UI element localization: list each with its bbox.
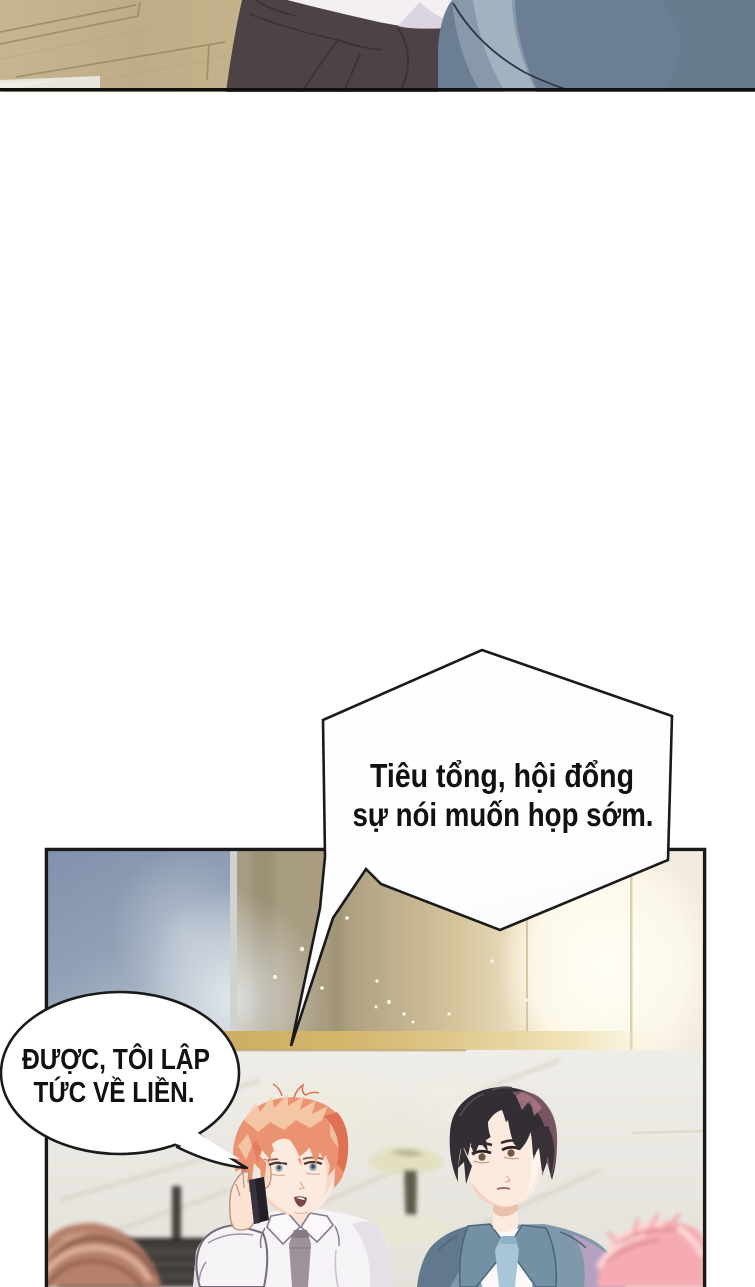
svg-text:Tiêu tổng, hội đổng: Tiêu tổng, hội đổng <box>370 757 634 794</box>
svg-text:ĐƯỢC, TÔI LẬP: ĐƯỢC, TÔI LẬP <box>22 1042 210 1076</box>
svg-text:sự nói muốn họp sớm.: sự nói muốn họp sớm. <box>353 796 654 833</box>
svg-text:TỨC VỀ LIỀN.: TỨC VỀ LIỀN. <box>34 1075 195 1109</box>
